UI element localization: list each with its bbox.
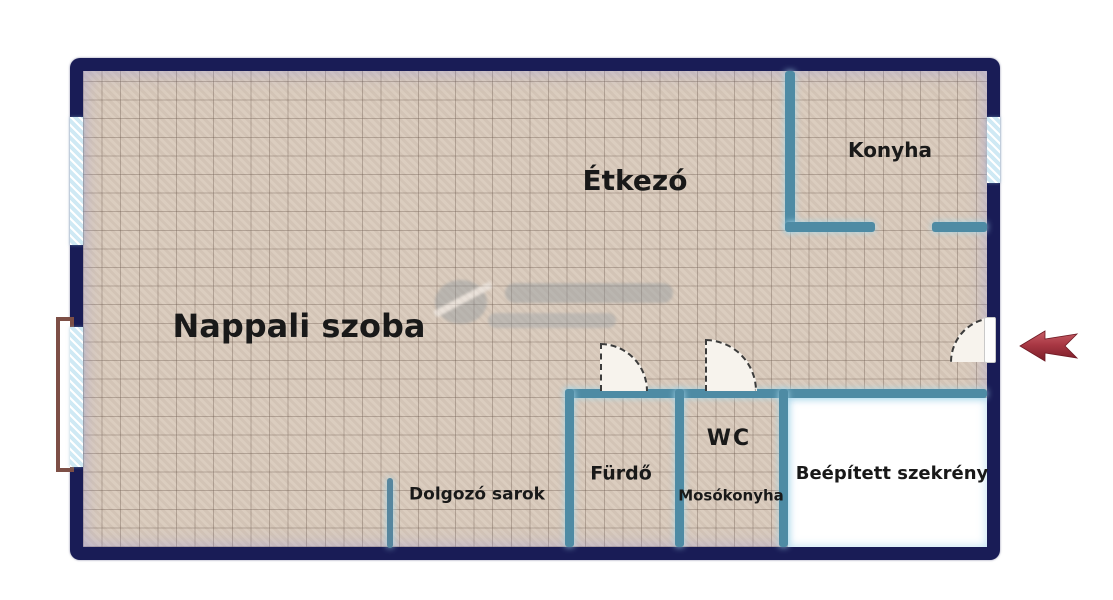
room-label-furdo: Fürdő	[590, 465, 652, 484]
room-label-beepitett-szekreny: Beépített szekrény	[796, 465, 988, 483]
wc-closet-divider-wall	[779, 389, 788, 547]
entry-arrow-icon	[1019, 328, 1081, 364]
work-corner-wall-stub	[387, 478, 393, 548]
floorplan-canvas: Nappali szoba Étkezó Konyha Dolgozó saro…	[0, 0, 1113, 600]
kitchen-wall-vertical	[785, 71, 795, 232]
room-label-nappali-szoba: Nappali szoba	[172, 310, 425, 342]
window-left-lower	[70, 327, 83, 467]
entry-door-leaf	[984, 317, 996, 363]
room-label-wc: WC	[707, 428, 751, 450]
kitchen-wall-horizontal-right	[932, 222, 987, 232]
bathroom-wc-divider-wall	[675, 389, 684, 547]
bathroom-wall-left	[565, 389, 574, 547]
room-label-dolgozo-sarok: Dolgozó sarok	[409, 487, 545, 504]
room-label-etkezo: Étkezó	[583, 167, 688, 195]
watermark-text-blur-line2	[488, 313, 616, 328]
watermark-logo-icon	[435, 280, 487, 324]
window-right	[987, 117, 1000, 183]
kitchen-wall-horizontal-left	[785, 222, 875, 232]
window-left-upper	[70, 117, 83, 245]
room-label-konyha: Konyha	[848, 140, 932, 160]
watermark-text-blur-line1	[505, 283, 673, 303]
watermark-logo	[430, 272, 680, 337]
room-label-mosokonyha: Mosókonyha	[678, 489, 784, 504]
